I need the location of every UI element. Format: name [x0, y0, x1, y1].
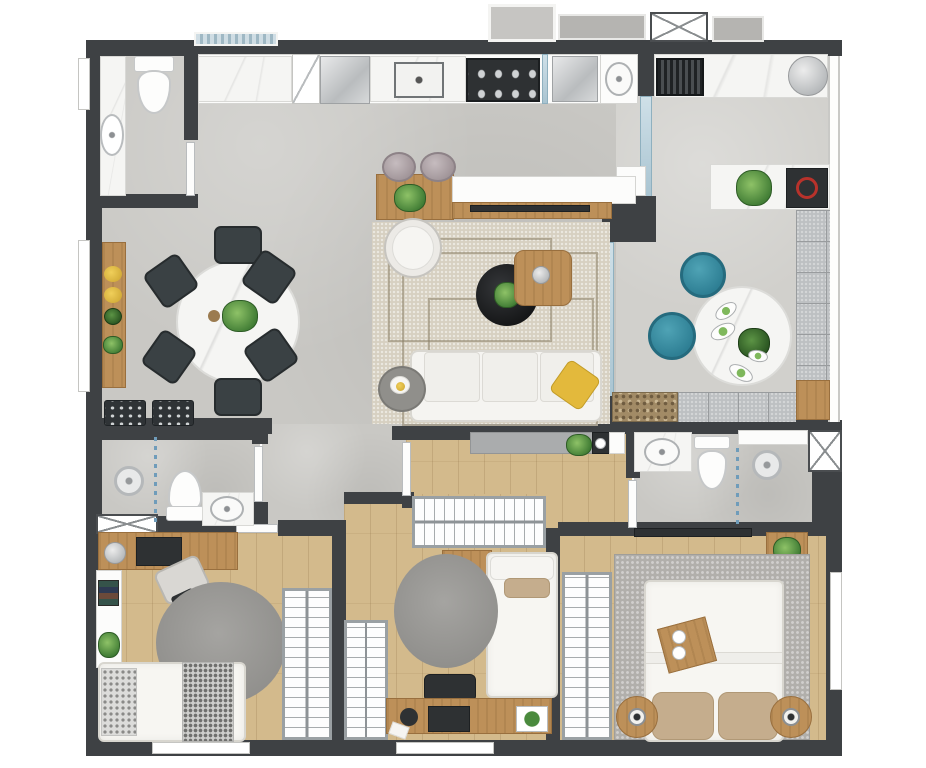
dining-plant — [222, 300, 258, 332]
sofa-side-candle — [396, 382, 405, 391]
kitchen-glass-slider — [542, 54, 548, 104]
side-table-decor — [532, 266, 550, 284]
bed2-closet-west — [344, 620, 388, 740]
bed2-closet-top — [412, 496, 546, 548]
bed1-closet — [282, 588, 332, 740]
shaft-suite — [808, 430, 842, 472]
balcony-pouf-2 — [648, 312, 696, 360]
niche-top-1 — [488, 4, 556, 42]
bath2-sink — [210, 496, 244, 522]
tray-plate-2 — [672, 646, 686, 660]
shaft-top — [650, 12, 708, 42]
wall-suite-right — [812, 470, 828, 526]
suite-shower-glass — [736, 446, 739, 524]
kitchen-sink — [394, 62, 444, 98]
tray-plate-1 — [672, 630, 686, 644]
bed1-monitor — [136, 537, 182, 566]
bed2-rug — [394, 554, 498, 668]
bed2-pillow-tan — [504, 578, 550, 598]
balcony-cooktop-plant — [736, 170, 772, 206]
oven-appliance — [552, 56, 598, 102]
bar-cart-2 — [152, 400, 194, 426]
kitchen-counter-marble-left — [198, 56, 292, 102]
bath2-shower-head — [114, 466, 144, 496]
balcony-pebble-strip — [612, 392, 678, 422]
bed2-pillow-white — [490, 556, 554, 580]
laundry-tank-sink — [605, 62, 633, 96]
master-pillow-2 — [718, 692, 778, 740]
bed1-desk-lamp — [104, 542, 126, 564]
window-bottom-bedroom2 — [396, 742, 494, 754]
sideboard-plant-2 — [103, 336, 123, 354]
hall-washer-box — [609, 432, 625, 454]
door-bath2 — [254, 446, 263, 502]
door-bath1 — [186, 142, 195, 196]
balcony-wood-deck — [796, 380, 830, 420]
balcony-tile-strip-right — [796, 210, 830, 382]
door-suite — [628, 480, 637, 528]
tv-living — [470, 205, 590, 212]
master-lamp-2 — [782, 708, 800, 726]
window-left-bath1 — [78, 58, 90, 110]
balcony-tile-strip-bottom — [678, 392, 796, 422]
wall-master-top — [558, 522, 630, 536]
window-bottom-bedroom1 — [152, 742, 250, 754]
kitchen-cabinet-diagonal — [292, 54, 320, 104]
bar-cart-1 — [104, 400, 146, 426]
sideboard-fruit-2 — [104, 287, 122, 303]
wall-bath2-right-upper — [252, 430, 268, 444]
bed1-shelf-plant — [98, 632, 120, 658]
wall-bath2-top — [92, 430, 268, 440]
hall-mini-sink-bowl — [595, 438, 606, 449]
bed1-books — [98, 580, 119, 606]
window-bath2-internal — [96, 514, 158, 534]
suite-shelf — [738, 430, 808, 445]
window-left-dining — [78, 240, 90, 392]
door-corridor — [402, 442, 411, 496]
niche-top-3 — [712, 16, 764, 42]
window-top-kitchen — [194, 32, 278, 46]
wall-bath1-right-upper — [184, 56, 198, 140]
window-right-master — [830, 572, 842, 690]
balcony-bowl-sink — [788, 56, 828, 96]
bath1-sink — [100, 114, 124, 156]
island-stool-1 — [382, 152, 416, 182]
master-pillow-1 — [652, 692, 714, 740]
wall-bath1-bottom — [86, 194, 198, 208]
dining-chair-bottom — [214, 378, 262, 416]
induction-ring — [796, 177, 818, 199]
sideboard-fruit-1 — [104, 266, 122, 282]
island-stool-2 — [420, 152, 456, 182]
bed2-laptop — [428, 706, 470, 732]
gas-stove — [466, 58, 540, 102]
suite-toilet-tank — [694, 436, 730, 449]
balcony-pouf-1 — [680, 252, 726, 298]
bed1-throw — [182, 662, 234, 742]
sideboard-plant-1 — [104, 308, 122, 325]
bath2-shower-glass — [154, 436, 157, 522]
barbecue-grill — [656, 58, 704, 96]
hall-counter-plant — [566, 434, 592, 456]
bed2-desk-lamp — [400, 708, 418, 726]
armchair-seat — [392, 226, 434, 270]
sofa-cushion-1 — [424, 352, 480, 402]
sofa-cushion-2 — [482, 352, 538, 402]
island-plant — [394, 184, 426, 212]
bath2-toilet-tank — [166, 506, 204, 521]
niche-top-2 — [558, 14, 646, 40]
suite-shower-head — [752, 450, 782, 480]
refrigerator — [320, 56, 370, 104]
master-lamp-1 — [628, 708, 646, 726]
suite-sink — [644, 438, 680, 466]
master-closet — [562, 572, 612, 740]
media-counter — [452, 176, 636, 204]
bed2-desk-plant — [516, 706, 548, 732]
dining-bowl — [208, 310, 220, 322]
master-tv — [634, 528, 752, 537]
apartment-floor-plan — [0, 0, 926, 768]
bed1-pillow — [101, 668, 137, 736]
